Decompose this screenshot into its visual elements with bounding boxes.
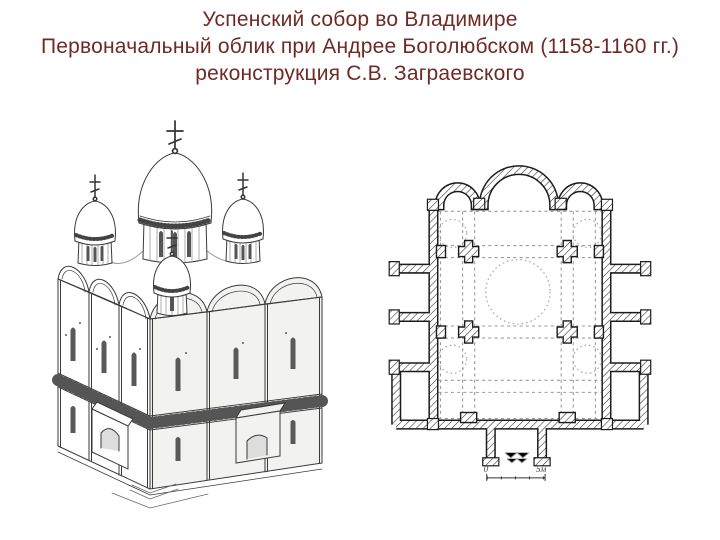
cross-northwest bbox=[90, 175, 100, 201]
dome-circles bbox=[438, 219, 601, 373]
cathedral-svg bbox=[40, 110, 360, 512]
cathedral-drawing bbox=[40, 110, 360, 512]
central-dome bbox=[138, 121, 211, 264]
slide: { "slide": { "background": "#ffffff", "l… bbox=[0, 0, 720, 540]
plan-piers bbox=[436, 241, 603, 423]
dome-northwest bbox=[75, 175, 116, 266]
title-line-1: Успенский собор во Владимире bbox=[0, 6, 720, 33]
porch-steps bbox=[505, 453, 529, 463]
floor-plan-svg: 0 5м bbox=[378, 153, 680, 500]
cross-central bbox=[167, 121, 183, 153]
title-line-2: Первоначальный облик при Андрее Боголюбс… bbox=[0, 33, 720, 60]
dome-southeast bbox=[223, 173, 264, 264]
scale-end-label: 5м bbox=[536, 464, 547, 474]
central-dome-circle bbox=[486, 260, 550, 324]
cross-southeast bbox=[238, 173, 248, 199]
porch-south bbox=[236, 403, 285, 463]
plan-walls bbox=[396, 170, 643, 461]
slide-title: Успенский собор во Владимире Первоначаль… bbox=[0, 6, 720, 87]
scale-zero-label: 0 bbox=[484, 464, 489, 474]
floor-plan: 0 5м bbox=[378, 153, 680, 500]
title-line-3: реконструкция С.В. Заграевского bbox=[0, 60, 720, 87]
